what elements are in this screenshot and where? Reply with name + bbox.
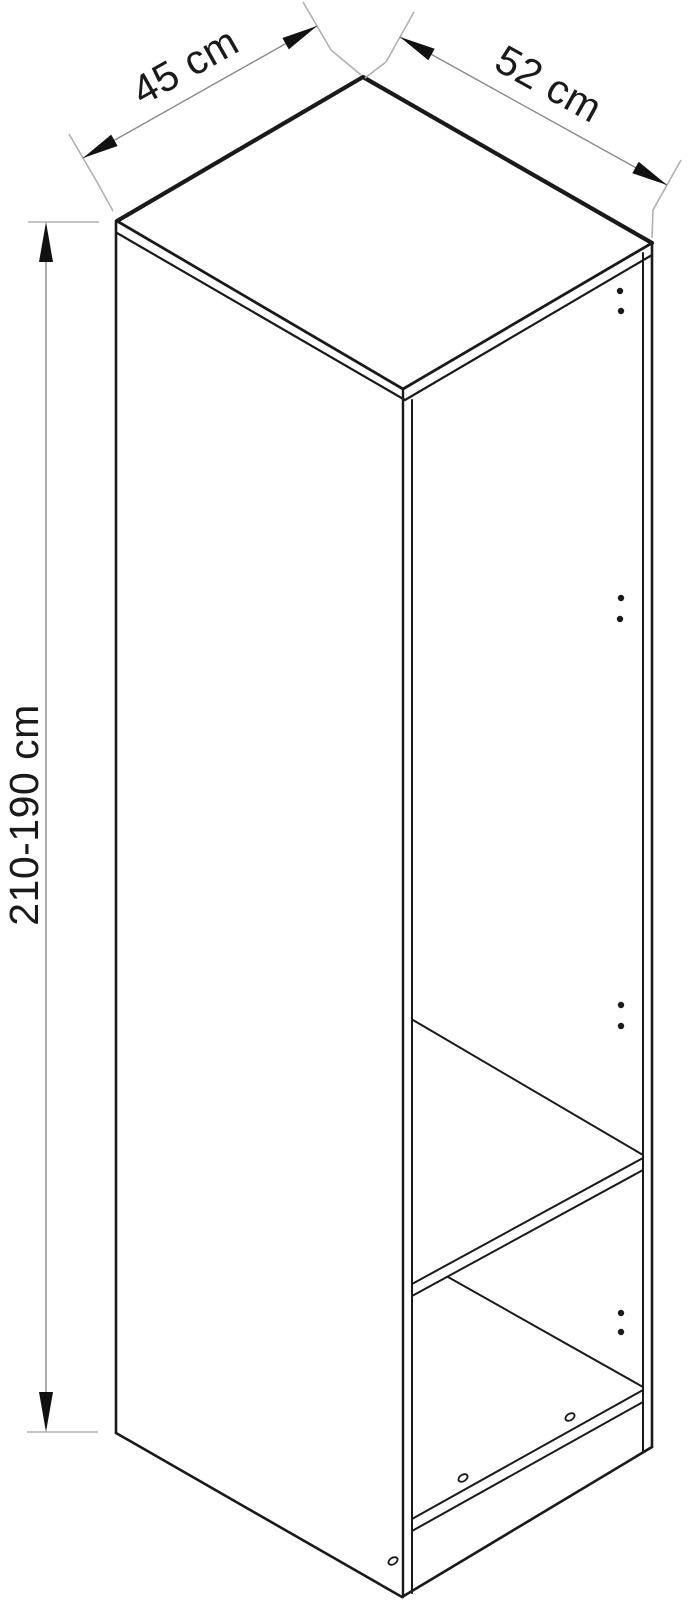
diagram-canvas: 45 cm 52 cm 210-190 cm xyxy=(0,0,689,1600)
top-face-front-left-edge xyxy=(117,221,403,389)
depth-extension-left xyxy=(365,12,414,78)
width-dimension-label: 45 cm xyxy=(124,18,246,114)
height-arrowhead-top xyxy=(39,222,53,262)
pin-hole xyxy=(618,1310,624,1316)
pin-hole xyxy=(618,308,624,314)
cabinet-outline xyxy=(116,77,652,1597)
depth-dimension-label: 52 cm xyxy=(488,36,610,132)
shelf-front-bottom-edge xyxy=(412,1170,643,1296)
top-panel-band-right xyxy=(405,255,652,400)
depth-arrowhead-left xyxy=(400,37,435,60)
screw-holes xyxy=(387,1412,576,1567)
left-panel-bottom-edge xyxy=(116,1433,402,1597)
wardrobe-dimension-diagram: 45 cm 52 cm 210-190 cm xyxy=(0,0,689,1600)
depth-extension-right xyxy=(652,160,681,238)
pin-hole xyxy=(617,616,623,622)
bottom-panel-front-top-edge xyxy=(412,1390,643,1519)
dimension-lines xyxy=(46,26,667,1428)
screw-hole xyxy=(457,1473,469,1484)
pin-hole xyxy=(618,595,624,601)
height-arrowhead-bottom xyxy=(39,1392,53,1432)
shelf-side-edge xyxy=(413,1020,643,1155)
pin-hole xyxy=(618,1023,624,1029)
width-arrowhead-right xyxy=(282,26,317,49)
pin-hole xyxy=(618,1002,624,1008)
bottom-panel-side-edge xyxy=(448,1277,643,1387)
width-extension-right xyxy=(303,2,361,75)
height-dimension-label: 210-190 cm xyxy=(1,704,47,926)
pin-hole xyxy=(617,288,623,294)
width-arrowhead-left xyxy=(83,135,118,158)
pin-hole xyxy=(618,1329,624,1335)
top-face-front-right-edge xyxy=(403,243,652,389)
screw-hole xyxy=(564,1412,576,1423)
shelf-pin-holes xyxy=(617,288,624,1335)
depth-arrowhead-right xyxy=(632,162,667,185)
bottom-panel-front-bottom-edge xyxy=(412,1402,643,1531)
shelf-front-top-edge xyxy=(412,1158,643,1284)
screw-hole xyxy=(387,1556,399,1567)
dimension-arrowheads xyxy=(39,26,667,1432)
bottom-front-edge xyxy=(402,1447,652,1597)
top-panel-band-left xyxy=(117,233,405,400)
